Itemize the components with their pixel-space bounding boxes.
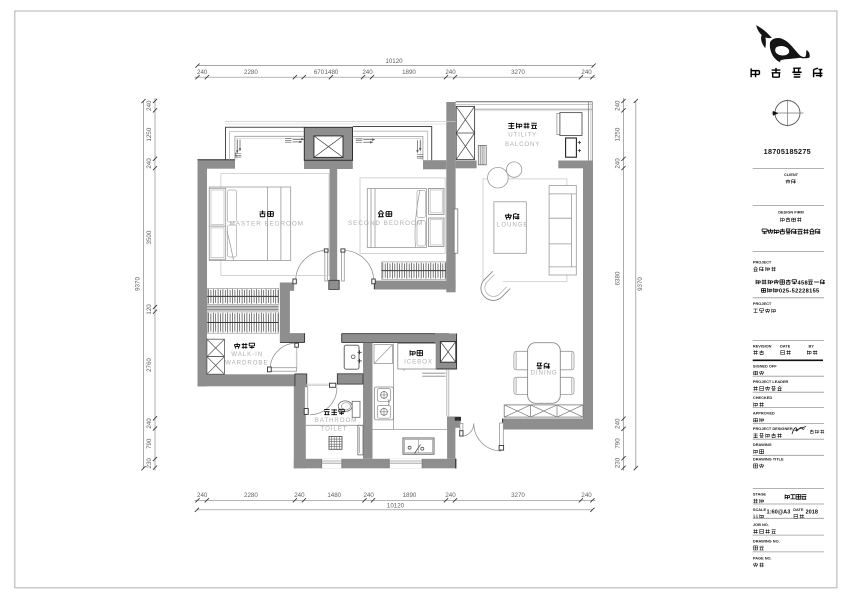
svg-text:1890: 1890 [403, 492, 417, 499]
svg-text:BALCONY: BALCONY [505, 141, 540, 148]
svg-text:230: 230 [146, 458, 153, 469]
svg-text:1:60@A3: 1:60@A3 [767, 510, 791, 516]
svg-text:DRAWING TITLE: DRAWING TITLE [753, 456, 784, 461]
svg-text:DRAWING NO.: DRAWING NO. [753, 538, 780, 543]
svg-text:CHECKED: CHECKED [753, 395, 772, 400]
svg-text:670: 670 [314, 69, 325, 76]
svg-text:9370: 9370 [637, 277, 644, 291]
svg-text:1250: 1250 [146, 127, 153, 141]
svg-text:9370: 9370 [134, 277, 141, 291]
svg-text:JOB NO.: JOB NO. [753, 522, 769, 527]
svg-text:DINING: DINING [530, 369, 557, 376]
svg-text:DRAWING: DRAWING [753, 442, 772, 447]
svg-text:1890: 1890 [402, 69, 416, 76]
svg-text:120: 120 [146, 304, 153, 315]
svg-text:240: 240 [614, 418, 621, 429]
svg-text:BY: BY [809, 343, 815, 348]
svg-text:240: 240 [445, 492, 456, 499]
svg-text:BATHROOM: BATHROOM [315, 417, 358, 424]
svg-text:10120: 10120 [387, 502, 405, 509]
svg-text:240: 240 [146, 158, 153, 169]
svg-text:240: 240 [614, 100, 621, 111]
svg-text:240: 240 [445, 69, 456, 76]
svg-text:PROJECT DESIGNER: PROJECT DESIGNER [753, 426, 793, 431]
svg-text:PROJECT: PROJECT [753, 260, 772, 265]
svg-text:025-52228155: 025-52228155 [779, 289, 820, 295]
svg-text:230: 230 [614, 457, 621, 468]
svg-text:240: 240 [146, 418, 153, 429]
svg-text:MASTER BEDROOM: MASTER BEDROOM [230, 221, 305, 228]
svg-text:DESIGN FIRM: DESIGN FIRM [778, 210, 804, 215]
svg-text:3270: 3270 [511, 492, 525, 499]
svg-text:PAGE NO.: PAGE NO. [753, 555, 772, 560]
svg-text:SIGNED OFF: SIGNED OFF [753, 363, 777, 368]
svg-text:SECOND BEDROOM: SECOND BEDROOM [348, 220, 423, 227]
svg-text:10120: 10120 [385, 58, 403, 65]
svg-text:240: 240 [581, 492, 592, 499]
svg-text:STAGE: STAGE [753, 492, 767, 497]
svg-text:2280: 2280 [244, 492, 258, 499]
svg-text:WALK-IN: WALK-IN [231, 351, 263, 358]
svg-text:ICEBOX: ICEBOX [404, 359, 433, 366]
svg-text:240: 240 [197, 492, 208, 499]
svg-text:DATE: DATE [793, 507, 804, 512]
svg-text:240: 240 [294, 492, 305, 499]
svg-text:DATE: DATE [780, 343, 791, 348]
svg-text:240: 240 [146, 100, 153, 111]
svg-text:790: 790 [614, 438, 621, 449]
svg-text:1480: 1480 [327, 492, 341, 499]
svg-text:2018: 2018 [806, 510, 818, 516]
svg-text:PROJECT: PROJECT [753, 301, 772, 306]
svg-text:18705185275: 18705185275 [764, 147, 811, 156]
svg-text:240: 240 [197, 69, 208, 76]
svg-text:CLIENT: CLIENT [784, 172, 799, 177]
svg-text:2280: 2280 [244, 69, 258, 76]
svg-text:458: 458 [798, 280, 808, 286]
svg-text:3500: 3500 [146, 230, 153, 244]
svg-text:240: 240 [614, 158, 621, 169]
svg-text:3270: 3270 [511, 69, 525, 76]
svg-text:WARDROBE: WARDROBE [225, 359, 268, 366]
svg-text:240: 240 [362, 69, 373, 76]
svg-text:LOUNGE: LOUNGE [497, 222, 529, 229]
svg-text:1480: 1480 [325, 69, 339, 76]
svg-text:1250: 1250 [614, 127, 621, 141]
svg-text:SCALE: SCALE [753, 507, 767, 512]
svg-text:790: 790 [146, 438, 153, 449]
svg-text:240: 240 [581, 69, 592, 76]
svg-text:PROJECT LEADER: PROJECT LEADER [753, 379, 789, 384]
svg-text:2760: 2760 [146, 358, 153, 372]
svg-text:APPROVED: APPROVED [753, 411, 775, 416]
svg-text:TOILET: TOILET [321, 426, 348, 433]
svg-text:UTILITY: UTILITY [508, 131, 537, 138]
svg-text:REVISION: REVISION [753, 343, 772, 348]
svg-text:240: 240 [364, 492, 375, 499]
svg-text:6380: 6380 [614, 271, 621, 285]
